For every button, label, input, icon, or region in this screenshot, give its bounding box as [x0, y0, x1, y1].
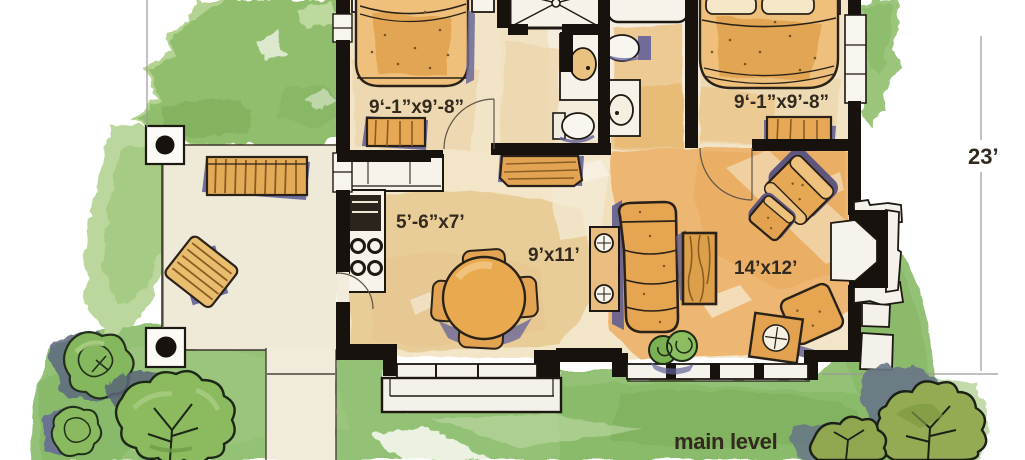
svg-text:9‘-1”x9’-8”: 9‘-1”x9’-8”	[369, 97, 464, 118]
svg-text:23’: 23’	[968, 144, 999, 169]
svg-text:5’-6”x7’: 5’-6”x7’	[396, 212, 465, 233]
svg-text:main level: main level	[674, 429, 777, 454]
svg-text:9‘-1”x9’-8”: 9‘-1”x9’-8”	[734, 92, 829, 113]
svg-text:14’x12’: 14’x12’	[734, 258, 797, 279]
svg-text:9’x11’: 9’x11’	[528, 245, 580, 266]
